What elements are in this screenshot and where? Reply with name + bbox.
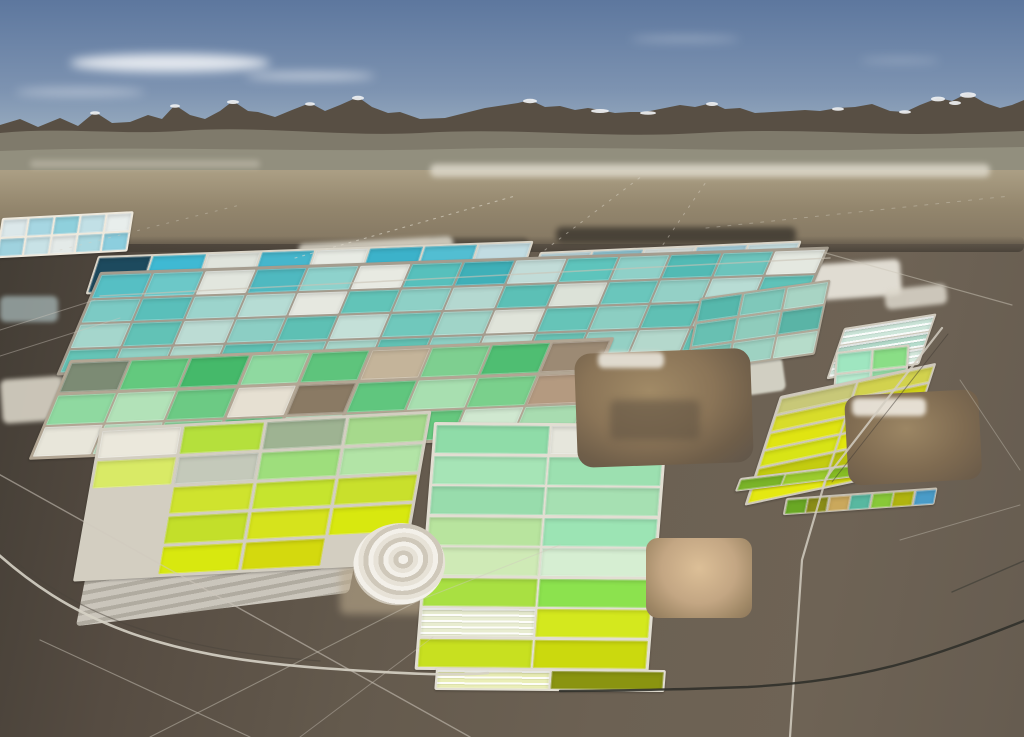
center-mound-salt bbox=[598, 352, 664, 368]
evaporation-pond bbox=[430, 486, 545, 515]
evaporation-pond bbox=[180, 355, 250, 387]
evaporation-pond bbox=[407, 377, 477, 409]
evaporation-pond bbox=[339, 444, 423, 475]
evaporation-pond bbox=[76, 234, 103, 253]
evaporation-pond bbox=[870, 492, 893, 508]
evaporation-pond bbox=[772, 331, 818, 359]
evaporation-pond bbox=[300, 350, 370, 382]
evaporation-pond bbox=[630, 328, 690, 353]
evaporation-pond bbox=[538, 579, 653, 608]
central-strip-ponds bbox=[434, 668, 666, 692]
evaporation-pond bbox=[849, 494, 872, 510]
evaporation-pond bbox=[159, 543, 243, 574]
evaporation-pond bbox=[82, 517, 166, 548]
evaporation-pond bbox=[287, 383, 357, 415]
evaporation-pond bbox=[496, 284, 556, 309]
evaporation-pond bbox=[120, 358, 190, 390]
evaporation-pond bbox=[278, 316, 338, 341]
evaporation-pond bbox=[1, 219, 28, 238]
evaporation-pond bbox=[101, 232, 128, 251]
evaporation-pond bbox=[247, 268, 307, 293]
evaporation-pond bbox=[185, 294, 245, 319]
evaporation-pond bbox=[46, 393, 116, 425]
evaporation-pond bbox=[166, 388, 236, 420]
evaporation-pond bbox=[27, 217, 54, 236]
evaporation-pond bbox=[427, 517, 542, 546]
evaporation-pond bbox=[551, 671, 664, 690]
evaporation-pond bbox=[237, 293, 297, 318]
evaporation-pond bbox=[169, 483, 253, 514]
evaporation-pond bbox=[382, 312, 442, 337]
evaporation-pond bbox=[175, 319, 235, 344]
evaporation-pond bbox=[392, 287, 452, 312]
evaporation-pond bbox=[180, 422, 264, 453]
evaporation-pond bbox=[784, 498, 807, 514]
evaporation-pond bbox=[535, 609, 650, 638]
evaporation-pond bbox=[435, 425, 550, 454]
evaporation-pond bbox=[330, 314, 390, 339]
evaporation-pond bbox=[104, 213, 131, 232]
evaporation-pond bbox=[444, 285, 504, 310]
evaporation-pond bbox=[600, 280, 660, 305]
evaporation-pond bbox=[257, 448, 341, 479]
mountain-range bbox=[0, 55, 1024, 170]
evaporation-pond bbox=[892, 491, 915, 507]
evaporation-pond bbox=[467, 375, 537, 407]
evaporation-pond bbox=[33, 425, 103, 457]
evaporation-pond bbox=[196, 270, 256, 295]
evaporation-pond bbox=[420, 608, 535, 637]
upper-left-pond-ghost bbox=[0, 296, 58, 322]
evaporation-pond bbox=[144, 271, 204, 296]
evaporation-pond bbox=[106, 390, 176, 422]
evaporation-pond bbox=[262, 418, 346, 449]
evaporation-pond bbox=[78, 215, 105, 234]
evaporation-pond bbox=[246, 508, 330, 539]
evaporation-pond bbox=[59, 361, 129, 393]
evaporation-pond bbox=[610, 255, 670, 280]
evaporation-pond bbox=[299, 266, 359, 291]
evaporation-pond bbox=[403, 262, 463, 287]
evaporation-pond bbox=[164, 513, 248, 544]
evaporation-pond bbox=[53, 216, 80, 235]
evaporation-pond bbox=[133, 296, 193, 321]
evaporation-pond bbox=[87, 487, 171, 518]
evaporation-pond bbox=[251, 478, 335, 509]
aerial-photo-lithium-evaporation-ponds bbox=[0, 0, 1024, 737]
horizon-salt-flat bbox=[430, 164, 990, 177]
evaporation-pond bbox=[872, 346, 907, 369]
top-left-cluster bbox=[0, 211, 134, 258]
evaporation-pond bbox=[540, 548, 655, 577]
evaporation-pond bbox=[766, 250, 826, 275]
evaporation-pond bbox=[71, 323, 131, 348]
evaporation-pond bbox=[480, 343, 550, 375]
evaporation-pond bbox=[289, 291, 349, 316]
right-mound-salt bbox=[852, 398, 926, 416]
evaporation-pond bbox=[0, 238, 25, 257]
evaporation-pond bbox=[333, 474, 417, 505]
center-mound-shade bbox=[610, 400, 700, 440]
evaporation-pond bbox=[836, 350, 871, 373]
evaporation-pond bbox=[589, 305, 649, 330]
evaporation-pond bbox=[662, 253, 722, 278]
evaporation-pond bbox=[913, 489, 936, 505]
evaporation-pond bbox=[175, 453, 259, 484]
evaporation-pond bbox=[558, 257, 618, 282]
evaporation-pond bbox=[548, 282, 608, 307]
evaporation-pond bbox=[641, 303, 701, 328]
cloud-streak-4 bbox=[630, 36, 740, 42]
evaporation-pond bbox=[827, 495, 850, 511]
evaporation-pond bbox=[123, 321, 183, 346]
evaporation-pond bbox=[485, 308, 545, 333]
evaporation-pond bbox=[432, 456, 547, 485]
evaporation-pond bbox=[418, 639, 533, 668]
evaporation-pond bbox=[714, 251, 774, 276]
evaporation-pond bbox=[76, 547, 160, 578]
evaporation-pond bbox=[537, 307, 597, 332]
evaporation-pond bbox=[347, 380, 417, 412]
evaporation-pond bbox=[545, 487, 660, 516]
evaporation-pond bbox=[420, 345, 490, 377]
evaporation-pond bbox=[226, 385, 296, 417]
evaporation-pond bbox=[533, 640, 648, 669]
evaporation-pond bbox=[92, 273, 152, 298]
evaporation-pond bbox=[507, 259, 567, 284]
evaporation-pond bbox=[341, 289, 401, 314]
evaporation-pond bbox=[92, 457, 176, 488]
evaporation-pond bbox=[241, 539, 325, 570]
evaporation-pond bbox=[240, 353, 310, 385]
evaporation-pond bbox=[434, 310, 494, 335]
evaporation-pond bbox=[436, 670, 549, 689]
evaporation-pond bbox=[344, 414, 428, 445]
evaporation-pond bbox=[543, 518, 658, 547]
shadow-patch-upper bbox=[556, 227, 796, 243]
evaporation-pond bbox=[81, 298, 141, 323]
evaporation-pond bbox=[351, 264, 411, 289]
evaporation-pond bbox=[24, 236, 51, 255]
evaporation-pond bbox=[226, 318, 286, 343]
bottom-tan-mound bbox=[646, 538, 752, 618]
evaporation-pond bbox=[455, 261, 515, 286]
evaporation-pond bbox=[98, 427, 182, 458]
evaporation-pond bbox=[360, 348, 430, 380]
evaporation-pond bbox=[806, 497, 829, 513]
horizon-salt-flat-left bbox=[30, 160, 260, 168]
evaporation-pond bbox=[50, 235, 77, 254]
